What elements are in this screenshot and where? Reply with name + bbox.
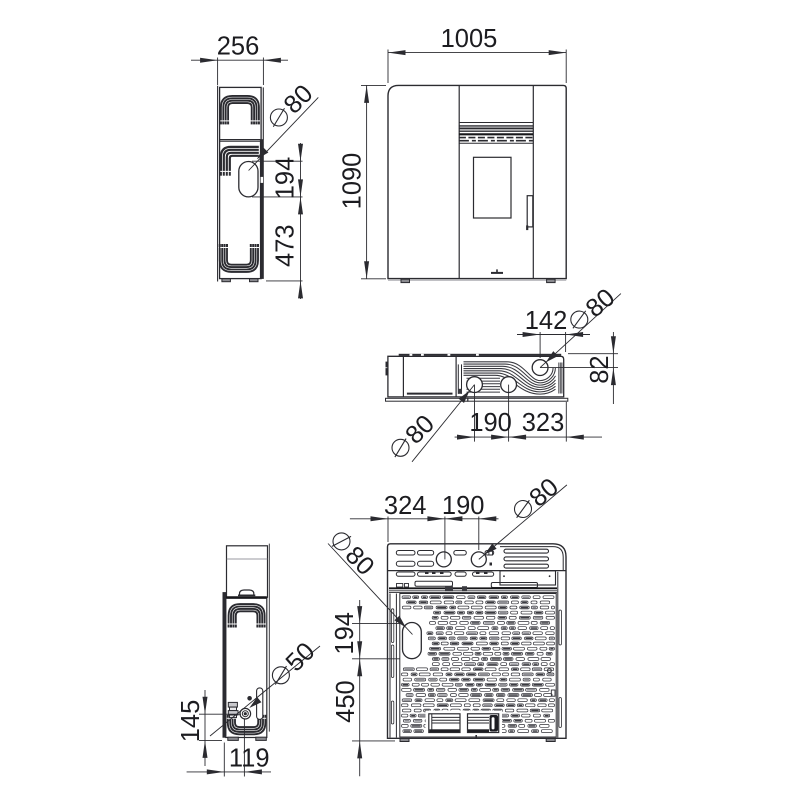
svg-text:1090: 1090 [339, 153, 367, 210]
svg-text:256: 256 [217, 32, 260, 60]
svg-text:1005: 1005 [441, 25, 498, 53]
svg-text:190: 190 [469, 409, 512, 437]
svg-text:324: 324 [384, 492, 427, 520]
svg-text:194: 194 [331, 612, 359, 655]
svg-text:190: 190 [442, 492, 485, 520]
svg-text:450: 450 [332, 680, 360, 723]
svg-text:145: 145 [177, 700, 205, 743]
svg-text:82: 82 [586, 355, 614, 383]
svg-text:323: 323 [522, 409, 565, 437]
svg-text:142: 142 [525, 307, 568, 335]
svg-text:119: 119 [229, 745, 270, 773]
svg-text:194: 194 [272, 157, 300, 200]
svg-text:473: 473 [272, 224, 300, 267]
